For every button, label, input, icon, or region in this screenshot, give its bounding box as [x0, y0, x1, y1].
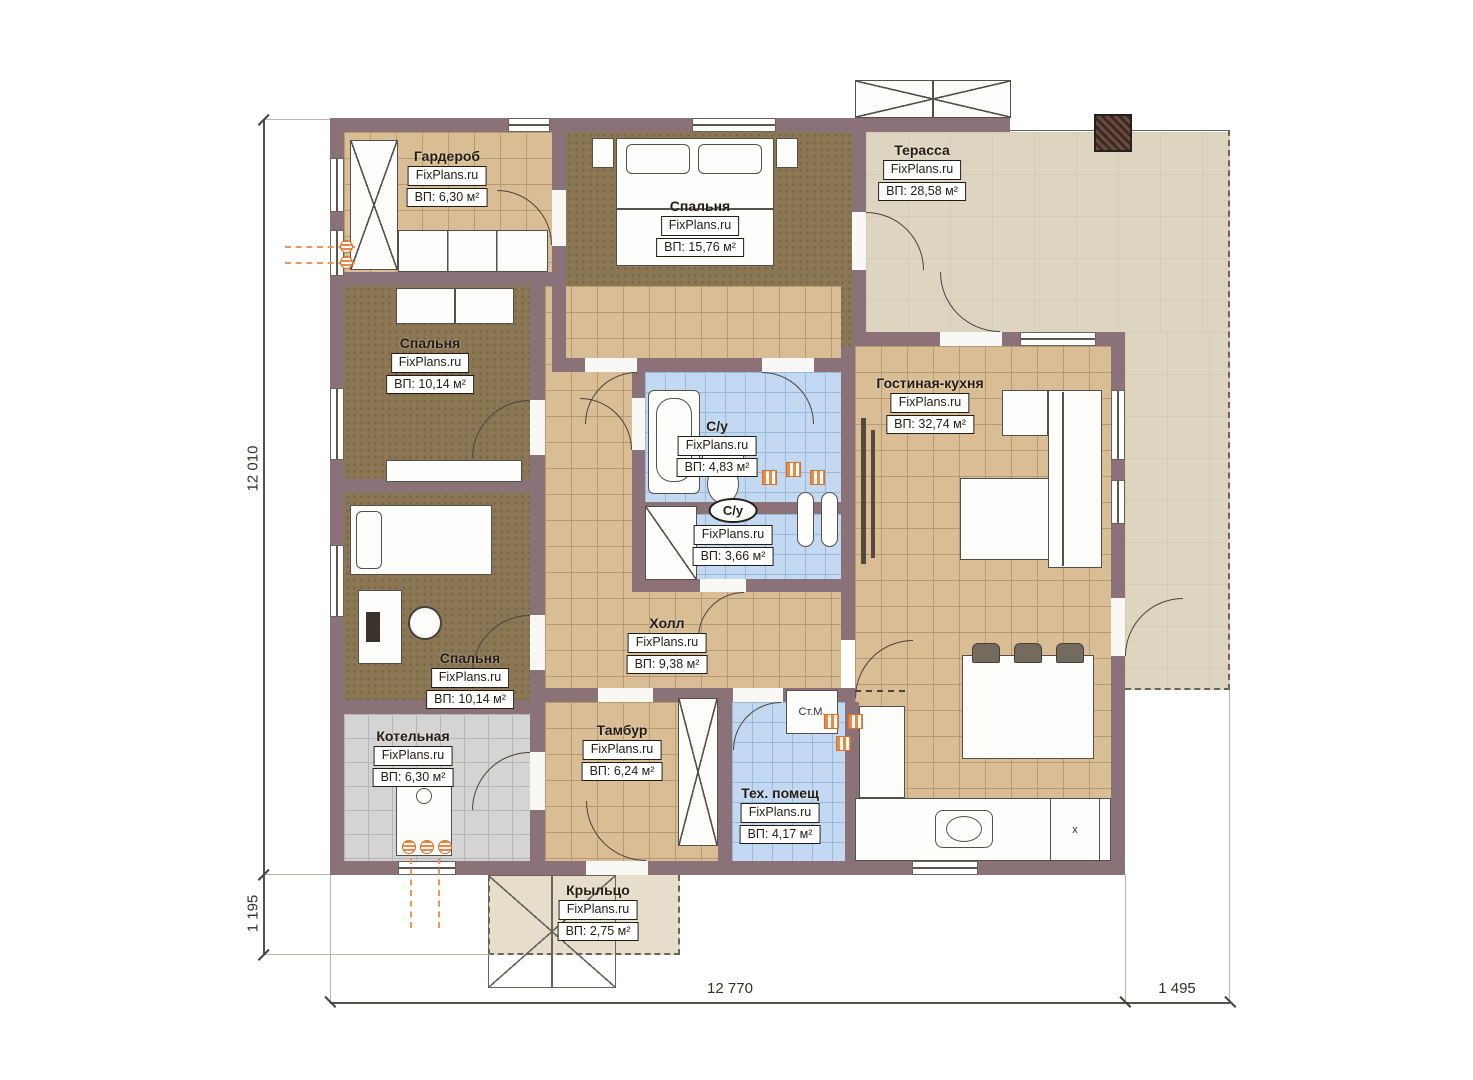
room-label-bedroom-top: Спальня FixPlans.ru ВП: 15,76 м²	[656, 198, 744, 257]
door-gap-bedroom-bottom	[530, 615, 545, 670]
wall-vestibule-tech	[718, 702, 732, 861]
sofa-vertical	[1048, 390, 1102, 568]
room-label-living-kitchen: Гостиная-кухня FixPlans.ru ВП: 32,74 м²	[876, 375, 983, 434]
dining-table	[962, 655, 1094, 759]
brand-box: FixPlans.ru	[741, 803, 820, 823]
brand-box: FixPlans.ru	[583, 740, 662, 760]
wall-outer-top	[330, 118, 1010, 132]
towel-dryer	[821, 492, 838, 547]
brand-box: FixPlans.ru	[374, 746, 453, 766]
extension-line	[1229, 690, 1230, 1002]
wardrobe-unit	[396, 288, 514, 324]
area-box: ВП: 6,30 м²	[407, 188, 488, 208]
room-name: С/у	[706, 418, 728, 434]
area-box: ВП: 32,74 м²	[886, 415, 974, 435]
stove-cell: x	[1050, 798, 1100, 861]
door-gap-tech	[733, 688, 783, 702]
extension-line	[1125, 875, 1126, 1002]
window-top-wardrobe	[508, 118, 550, 132]
pillow	[356, 511, 382, 569]
dimension-line-left-main	[263, 120, 265, 875]
chair	[1014, 643, 1042, 663]
area-box: ВП: 10,14 м²	[386, 375, 474, 395]
room-label-hall: Холл FixPlans.ru ВП: 9,38 м²	[627, 615, 708, 674]
room-label-boiler-room: Котельная FixPlans.ru ВП: 6,30 м²	[373, 728, 454, 787]
partition-bar	[871, 430, 875, 558]
radiator-valve	[340, 240, 353, 253]
room-label-bathroom-2: С/у FixPlans.ru ВП: 3,66 м²	[693, 498, 774, 566]
extension-line	[263, 954, 490, 955]
brand-box: FixPlans.ru	[391, 353, 470, 373]
kitchen-cabinet-side	[859, 706, 905, 798]
vestibule-closet	[678, 698, 718, 846]
room-name: Тамбур	[597, 722, 648, 738]
room-label-bedroom-bottom: Спальня FixPlans.ru ВП: 10,14 м²	[426, 650, 514, 709]
window-left-wardrobe-2	[330, 230, 344, 276]
window-kitchen-bottom	[912, 861, 978, 875]
pillow	[626, 144, 690, 174]
brand-box: FixPlans.ru	[408, 166, 487, 186]
window-top-bedroom	[692, 118, 776, 132]
area-box: ВП: 4,83 м²	[677, 458, 758, 478]
dimension-line-bottom-main	[330, 1002, 1125, 1004]
door-gap-front	[586, 861, 648, 875]
door-gap-bedroom-left	[530, 400, 545, 455]
chair	[972, 643, 1000, 663]
nightstand	[776, 138, 798, 168]
window-right-living-2	[1111, 480, 1125, 524]
door-gap-hall-vestibule	[598, 688, 653, 702]
desk-long	[386, 460, 522, 482]
boiler-valve	[402, 840, 416, 854]
sofa-back-line	[1062, 392, 1064, 566]
door-gap-terrace-bedroom	[852, 212, 866, 270]
brand-box: FixPlans.ru	[559, 900, 638, 920]
area-box: ВП: 10,14 м²	[426, 690, 514, 710]
room-label-wardrobe: Гардероб FixPlans.ru ВП: 6,30 м²	[407, 148, 488, 207]
door-gap-terrace-right	[1111, 598, 1125, 656]
porch-roof-ridge	[551, 875, 553, 988]
boiler-pipe	[438, 858, 440, 928]
window-left-bedroom2	[330, 388, 344, 460]
washing-machine-label: Ст.М.	[798, 706, 825, 718]
room-name: Холл	[649, 615, 684, 631]
door-gap-bedroom-top-b	[762, 358, 814, 372]
area-box: ВП: 9,38 м²	[627, 655, 708, 675]
nightstand	[592, 138, 614, 168]
area-box: ВП: 3,66 м²	[693, 547, 774, 567]
dimension-left-main: 12 010	[245, 419, 262, 519]
shower-tray	[645, 506, 697, 580]
wall-wardrobe-bottom	[344, 272, 566, 286]
extension-line	[263, 119, 330, 120]
terrace-boundary-bottom	[1125, 688, 1230, 690]
dimension-line-left-porch	[263, 875, 265, 955]
wall-hall-kitchen	[841, 346, 855, 640]
room-label-tech-room: Тех. помещ FixPlans.ru ВП: 4,17 м²	[740, 785, 821, 844]
brand-box: FixPlans.ru	[431, 668, 510, 688]
door-gap-bedroom-top-a	[585, 358, 637, 372]
radiator-valve	[340, 256, 353, 269]
room-label-terrace: Терасса FixPlans.ru ВП: 28,58 м²	[878, 142, 966, 201]
radiator	[824, 714, 839, 729]
room-label-vestibule: Тамбур FixPlans.ru ВП: 6,24 м²	[582, 722, 663, 781]
kitchen-island	[960, 478, 1052, 560]
room-label-bathroom-1: С/у FixPlans.ru ВП: 4,83 м²	[677, 418, 758, 477]
door-gap-bath2	[700, 579, 746, 592]
wardrobe-cabinet-vertical	[350, 140, 398, 270]
brand-box: FixPlans.ru	[694, 525, 773, 545]
chair	[1056, 643, 1084, 663]
room-name: Котельная	[376, 728, 449, 744]
window-living-terrace	[1020, 332, 1096, 346]
area-box: ВП: 6,24 м²	[582, 762, 663, 782]
radiator	[762, 470, 777, 485]
door-gap-terrace-living	[940, 332, 1002, 346]
door-gap-wardrobe	[552, 190, 566, 246]
dimension-line-bottom-terrace	[1125, 1002, 1230, 1004]
area-box: ВП: 6,30 м²	[373, 768, 454, 788]
room-name: Тех. помещ	[741, 785, 819, 801]
radiator	[848, 714, 863, 729]
radiator	[836, 736, 851, 751]
chair-round	[408, 606, 442, 640]
extension-line	[330, 875, 331, 1002]
extension-line	[263, 874, 330, 875]
window-left-bedroom3	[330, 545, 344, 617]
brand-box: FixPlans.ru	[678, 436, 757, 456]
dimension-bottom-terrace: 1 495	[1132, 980, 1222, 997]
brand-box: FixPlans.ru	[628, 633, 707, 653]
floor-plan: x Ст.М. Гардероб FixPlans.ru ВП: 6,30 м²…	[0, 0, 1473, 1080]
dimension-left-porch: 1 195	[245, 864, 262, 964]
area-box: ВП: 2,75 м²	[558, 922, 639, 942]
boiler-pipe	[410, 858, 412, 928]
area-box: ВП: 15,76 м²	[656, 238, 744, 258]
boiler-valve	[438, 840, 452, 854]
room-name: Терасса	[894, 142, 950, 158]
door-gap-boiler	[530, 752, 545, 810]
towel-dryer	[797, 492, 814, 547]
brand-box: FixPlans.ru	[883, 160, 962, 180]
brand-box: FixPlans.ru	[891, 393, 970, 413]
sofa-corner	[1002, 390, 1048, 436]
radiator	[786, 462, 801, 477]
window-left-wardrobe-1	[330, 158, 344, 212]
brand-box: FixPlans.ru	[661, 216, 740, 236]
area-box: ВП: 4,17 м²	[740, 825, 821, 845]
room-label-bedroom-left: Спальня FixPlans.ru ВП: 10,14 м²	[386, 335, 474, 394]
pillow	[698, 144, 762, 174]
terrace-boundary-right	[1228, 130, 1230, 690]
room-name: Спальня	[400, 335, 460, 351]
room-name: Спальня	[670, 198, 730, 214]
room-name: Гардероб	[414, 148, 480, 164]
room-name: Крыльцо	[566, 882, 630, 898]
area-box: ВП: 28,58 м²	[878, 182, 966, 202]
room-label-porch: Крыльцо FixPlans.ru ВП: 2,75 м²	[558, 882, 639, 941]
monitor	[366, 612, 380, 642]
sink-basin	[946, 816, 982, 842]
stove-mark: x	[1072, 824, 1078, 836]
window-right-living-1	[1111, 390, 1125, 460]
radiator	[810, 470, 825, 485]
room-name: С/у	[709, 498, 757, 523]
room-name: Гостиная-кухня	[876, 375, 983, 391]
boiler-valve	[420, 840, 434, 854]
boiler-dial	[416, 788, 432, 804]
dimension-bottom-main: 12 770	[660, 980, 800, 997]
room-name: Спальня	[440, 650, 500, 666]
roof-overhang-divider	[932, 80, 934, 118]
window-boiler-bottom	[398, 861, 456, 875]
partition-bar	[861, 418, 866, 564]
desk	[358, 590, 402, 664]
chimney	[1094, 114, 1132, 152]
